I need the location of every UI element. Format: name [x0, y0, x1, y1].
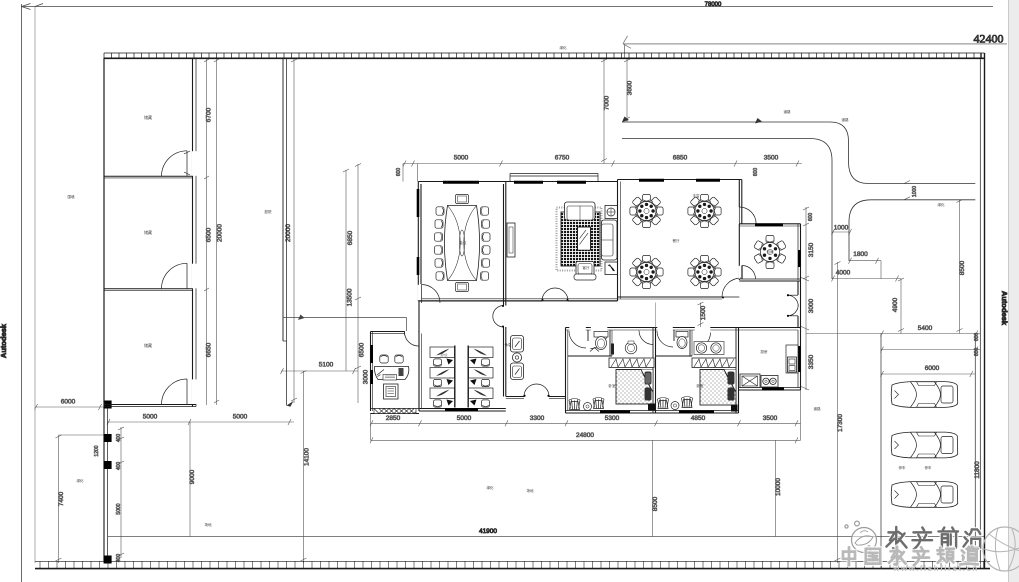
svg-text:400: 400 — [116, 554, 122, 563]
svg-text:绿化: 绿化 — [938, 202, 946, 207]
svg-text:400: 400 — [116, 462, 122, 471]
svg-text:6850: 6850 — [673, 155, 688, 162]
svg-text:停车: 停车 — [899, 465, 907, 470]
svg-text:3500: 3500 — [764, 155, 779, 162]
svg-text:41900: 41900 — [479, 528, 497, 535]
svg-text:3600: 3600 — [627, 80, 634, 95]
svg-text:5100: 5100 — [319, 362, 334, 369]
svg-text:4850: 4850 — [691, 415, 706, 422]
svg-text:24800: 24800 — [576, 432, 594, 439]
svg-text:3350: 3350 — [808, 354, 815, 369]
svg-text:办公: 办公 — [441, 352, 449, 357]
svg-text:休息: 休息 — [505, 342, 513, 347]
svg-text:餐厅: 餐厅 — [673, 238, 681, 243]
svg-text:6750: 6750 — [555, 155, 570, 162]
svg-text:围墙: 围墙 — [68, 194, 75, 199]
svg-text:20000: 20000 — [217, 224, 224, 242]
svg-text:卧室: 卧室 — [609, 383, 617, 388]
svg-text:600: 600 — [396, 168, 402, 177]
svg-text:1800: 1800 — [853, 251, 868, 258]
svg-text:6000: 6000 — [61, 399, 76, 406]
svg-text:绿化: 绿化 — [487, 485, 495, 490]
svg-text:储藏: 储藏 — [144, 342, 152, 348]
svg-text:绿化: 绿化 — [560, 45, 568, 50]
svg-text:4000: 4000 — [836, 270, 851, 277]
svg-text:7000: 7000 — [604, 95, 611, 110]
svg-text:14100: 14100 — [304, 448, 311, 466]
svg-text:20000: 20000 — [285, 224, 292, 242]
svg-text:1000: 1000 — [834, 225, 849, 232]
svg-text:庭院: 庭院 — [265, 209, 273, 214]
svg-text:8500: 8500 — [959, 260, 966, 275]
svg-text:场地: 场地 — [205, 522, 212, 527]
svg-text:6700: 6700 — [206, 107, 213, 122]
svg-text:6500: 6500 — [206, 227, 213, 242]
svg-text:400: 400 — [116, 434, 122, 443]
svg-text:42400: 42400 — [974, 32, 1004, 46]
svg-text:13500: 13500 — [347, 288, 354, 306]
svg-text:绿化: 绿化 — [77, 478, 84, 483]
svg-text:5000: 5000 — [233, 414, 248, 421]
svg-text:会议: 会议 — [460, 240, 468, 245]
svg-text:丰富: 丰富 — [693, 193, 701, 198]
svg-text:5000: 5000 — [457, 415, 472, 422]
svg-text:www.fishfirst.cn: www.fishfirst.cn — [892, 564, 979, 573]
svg-text:3500: 3500 — [763, 415, 778, 422]
svg-text:Autodesk: Autodesk — [0, 323, 8, 358]
svg-text:7400: 7400 — [58, 491, 65, 506]
svg-text:10000: 10000 — [775, 478, 782, 496]
svg-text:78000: 78000 — [705, 2, 722, 8]
svg-text:1500: 1500 — [700, 305, 707, 320]
svg-text:Autodesk: Autodesk — [1000, 291, 1009, 326]
svg-text:场地: 场地 — [527, 488, 535, 493]
svg-text:2850: 2850 — [386, 415, 401, 422]
svg-text:3150: 3150 — [808, 242, 815, 257]
svg-text:4900: 4900 — [892, 297, 899, 312]
svg-text:9000: 9000 — [189, 469, 196, 484]
svg-text:厨房: 厨房 — [761, 349, 769, 354]
svg-text:3300: 3300 — [530, 415, 545, 422]
svg-text:包间: 包间 — [767, 249, 775, 254]
svg-text:17300: 17300 — [837, 414, 844, 432]
svg-text:停车: 停车 — [925, 465, 933, 470]
svg-text:客厅: 客厅 — [583, 265, 591, 270]
svg-text:600: 600 — [808, 213, 814, 222]
svg-text:1000: 1000 — [912, 186, 918, 197]
svg-text:6850: 6850 — [347, 230, 354, 245]
svg-text:600: 600 — [753, 168, 759, 177]
svg-text:道路: 道路 — [784, 109, 792, 114]
svg-text:道路: 道路 — [842, 117, 850, 122]
svg-text:1200: 1200 — [94, 445, 100, 456]
svg-text:6650: 6650 — [206, 342, 213, 357]
svg-text:8500: 8500 — [652, 496, 659, 511]
svg-text:5000: 5000 — [454, 155, 469, 162]
svg-text:5000: 5000 — [116, 503, 122, 514]
svg-text:3000: 3000 — [808, 298, 815, 313]
svg-text:3000: 3000 — [363, 369, 370, 384]
svg-text:6000: 6000 — [925, 365, 940, 372]
svg-text:6500: 6500 — [359, 342, 366, 357]
svg-text:5300: 5300 — [605, 415, 620, 422]
svg-text:5400: 5400 — [918, 325, 933, 332]
svg-text:卧室: 卧室 — [697, 383, 705, 388]
svg-text:道路: 道路 — [814, 406, 822, 411]
svg-text:储藏: 储藏 — [144, 229, 152, 235]
svg-text:5000: 5000 — [143, 414, 158, 421]
svg-text:储藏: 储藏 — [144, 114, 152, 120]
